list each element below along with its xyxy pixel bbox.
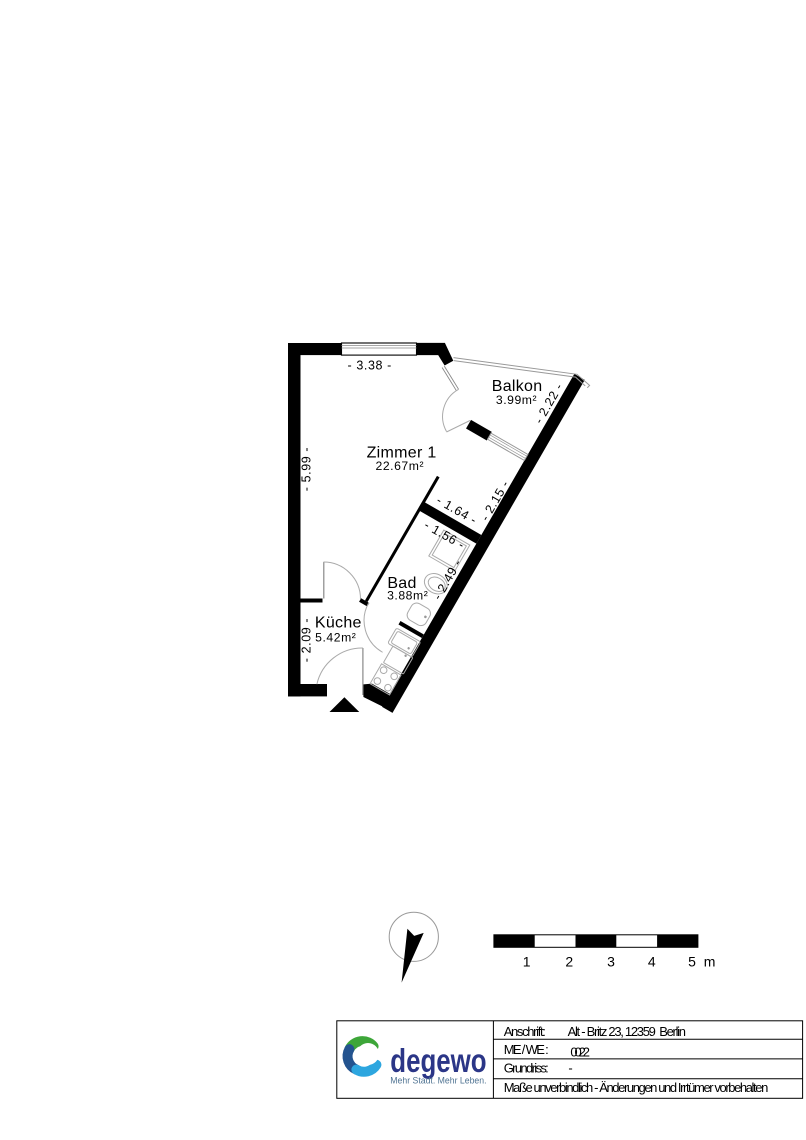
svg-text:- 3.38 -: - 3.38 - — [347, 359, 391, 373]
svg-text:- 5.99 -: - 5.99 - — [300, 447, 314, 491]
svg-text:Grundriss:: Grundriss: — [504, 1060, 549, 1075]
svg-text:Mehr Stadt. Mehr Leben.: Mehr Stadt. Mehr Leben. — [390, 1075, 486, 1085]
svg-text:1: 1 — [523, 954, 531, 970]
svg-text:Maße unverbindlich - Änderunge: Maße unverbindlich - Änderungen und Irrt… — [504, 1080, 769, 1095]
svg-text:- 2.09 -: - 2.09 - — [300, 618, 314, 662]
svg-text:Küche: Küche — [315, 615, 362, 632]
svg-text:ME / WE :: ME / WE : — [504, 1042, 549, 1057]
svg-text:5.42m²: 5.42m² — [315, 630, 356, 644]
svg-text:2: 2 — [565, 954, 573, 970]
svg-text:4: 4 — [648, 954, 656, 970]
svg-text:22.67m²: 22.67m² — [376, 459, 425, 473]
svg-text:Alt - Britz 23, 12359 Berlin: Alt - Britz 23, 12359 Berlin — [568, 1024, 686, 1039]
svg-text:5: 5 — [688, 954, 696, 970]
svg-text:-: - — [568, 1060, 572, 1075]
svg-text:3: 3 — [607, 954, 615, 970]
svg-text:degewo: degewo — [390, 1042, 486, 1079]
svg-text:Anschrift:: Anschrift: — [504, 1024, 546, 1039]
svg-text:0022: 0022 — [570, 1044, 590, 1059]
svg-text:3.88m²: 3.88m² — [387, 588, 428, 602]
svg-text:m: m — [704, 954, 716, 970]
svg-text:3.99m²: 3.99m² — [496, 393, 537, 407]
